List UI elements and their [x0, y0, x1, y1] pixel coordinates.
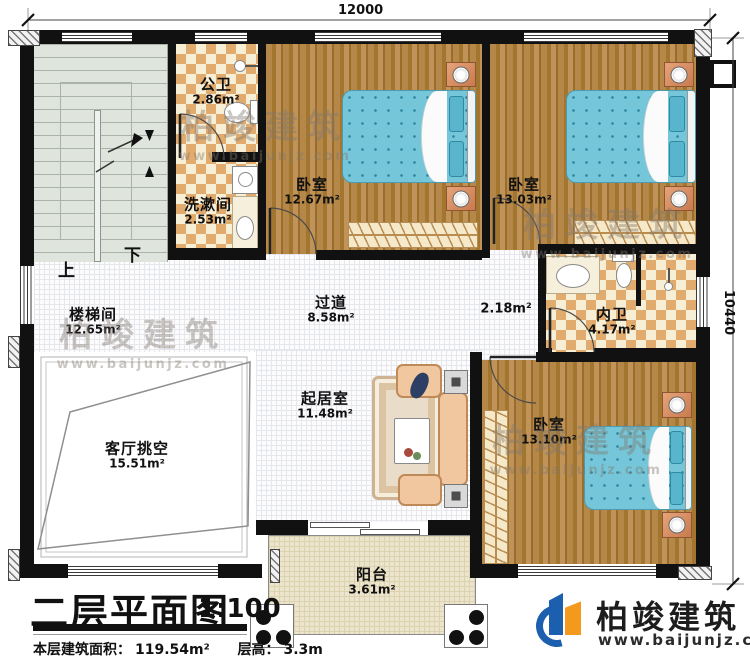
side-table — [444, 370, 468, 394]
floor-plan-sheet: 楼梯间12.65m² 公卫2.86m² 洗漱间2.53m² 卧室12.67m² … — [0, 0, 750, 663]
floor-area-value: 119.54m² — [135, 642, 210, 658]
sliding-door-panel — [310, 522, 370, 528]
sink-icon — [236, 216, 254, 240]
lamp-icon — [669, 397, 686, 414]
wardrobe — [484, 410, 508, 564]
window — [518, 566, 656, 576]
headboard — [467, 91, 475, 182]
room-label-bedroom2: 卧室13.03m² — [496, 176, 552, 207]
pillow — [670, 472, 683, 505]
pillow — [449, 141, 465, 177]
dimension-height: 10440 — [721, 290, 736, 335]
sofa — [438, 392, 468, 486]
wall — [20, 324, 34, 568]
logo-building-orange — [565, 600, 581, 635]
brand-logo-icon — [536, 591, 592, 655]
wall — [212, 152, 258, 162]
hatch-pier — [678, 566, 712, 580]
stair-down-label: 下 — [124, 241, 141, 266]
toilet-tank — [250, 100, 258, 124]
wall — [168, 248, 258, 260]
floor-height-label: 层高： — [238, 642, 280, 658]
flower-icon — [404, 448, 413, 457]
shower-icon — [664, 282, 673, 291]
title-underline-thin — [33, 634, 247, 635]
window — [315, 32, 441, 42]
window — [68, 566, 218, 576]
hatch-pier — [694, 29, 712, 57]
wall — [256, 520, 308, 535]
bed — [584, 426, 692, 510]
flue-box — [710, 60, 736, 88]
headboard — [685, 427, 691, 509]
wall — [470, 564, 518, 578]
hatch-pier — [8, 549, 20, 581]
dimension-width: 12000 — [338, 3, 383, 18]
pillow — [669, 141, 684, 177]
coffee-table — [394, 418, 430, 464]
nightstand — [446, 186, 476, 211]
room-label-void: 客厅挑空15.51m² — [105, 440, 169, 471]
lamp-icon — [453, 190, 470, 207]
fixture-arm — [245, 65, 258, 67]
stair-rail — [94, 110, 101, 262]
room-label-stairwell: 楼梯间12.65m² — [65, 306, 121, 337]
room-label-bedroom1: 卧室12.67m² — [284, 176, 340, 207]
hatch-pier — [8, 336, 20, 368]
wall — [470, 352, 482, 564]
sheet-scale: 1:100 — [198, 594, 281, 624]
sofa — [398, 474, 442, 506]
room-label-nook: 2.18m² — [480, 303, 531, 318]
window — [524, 32, 668, 42]
wall — [20, 30, 34, 266]
plant-icon — [413, 452, 421, 460]
duvet — [643, 91, 669, 182]
wall — [696, 30, 710, 277]
wall — [20, 564, 68, 578]
wall — [536, 352, 698, 362]
wall — [168, 44, 176, 250]
logo-building-blue — [549, 593, 563, 635]
room-label-bedroom3: 卧室13.10m² — [521, 416, 577, 447]
hatch-pier — [8, 30, 40, 46]
wall — [482, 44, 490, 258]
wardrobe — [348, 222, 478, 248]
duvet — [648, 427, 669, 509]
wall — [538, 244, 698, 254]
pillow — [670, 431, 683, 464]
sheet-info: 本层建筑面积：119.54m² 层高：3.3m — [33, 639, 327, 659]
nightstand — [664, 186, 694, 211]
headboard — [687, 91, 695, 182]
nightstand — [662, 392, 692, 418]
room-label-inner-bath: 内卫4.17m² — [588, 306, 635, 337]
wall — [696, 327, 710, 578]
nightstand — [446, 62, 476, 87]
lamp-icon — [671, 66, 688, 83]
hatch-pier — [270, 549, 280, 583]
room-label-washroom: 洗漱间2.53m² — [184, 196, 232, 227]
room-label-balcony: 阳台3.61m² — [348, 566, 395, 597]
duvet — [421, 91, 447, 182]
wall — [428, 520, 472, 535]
washer-drum — [238, 172, 253, 187]
toilet-tank — [612, 254, 634, 262]
lamp-icon — [671, 190, 688, 207]
wall — [636, 254, 641, 306]
window — [62, 32, 132, 42]
sink-icon — [556, 264, 590, 288]
balcony-column-block — [444, 604, 488, 648]
brand-url: www.baijunjz.com — [598, 631, 750, 649]
side-table — [444, 484, 468, 508]
wall — [218, 564, 262, 578]
window — [195, 32, 247, 42]
window — [696, 277, 710, 327]
wall — [538, 244, 546, 358]
window — [20, 266, 34, 324]
bed — [566, 90, 696, 183]
wardrobe — [574, 220, 696, 246]
pillow — [669, 96, 684, 132]
shower-hose — [668, 268, 670, 283]
room-label-corridor: 过道8.58m² — [307, 294, 354, 325]
room-label-public-bath: 公卫2.86m² — [192, 76, 239, 107]
stair-up-label: 上 — [58, 256, 75, 281]
sliding-door-panel — [360, 529, 420, 535]
room-label-living: 起居室11.48m² — [297, 390, 353, 421]
title-underline — [33, 624, 247, 631]
nightstand — [662, 512, 692, 538]
wall — [316, 250, 482, 260]
floor-height-value: 3.3m — [284, 642, 323, 658]
pillow — [449, 96, 465, 132]
lamp-icon — [453, 66, 470, 83]
wall — [258, 44, 266, 260]
nightstand — [664, 62, 694, 87]
floor-area-label: 本层建筑面积： — [33, 642, 131, 658]
bed — [342, 90, 476, 183]
toilet-icon — [616, 263, 632, 288]
lamp-icon — [669, 517, 686, 534]
